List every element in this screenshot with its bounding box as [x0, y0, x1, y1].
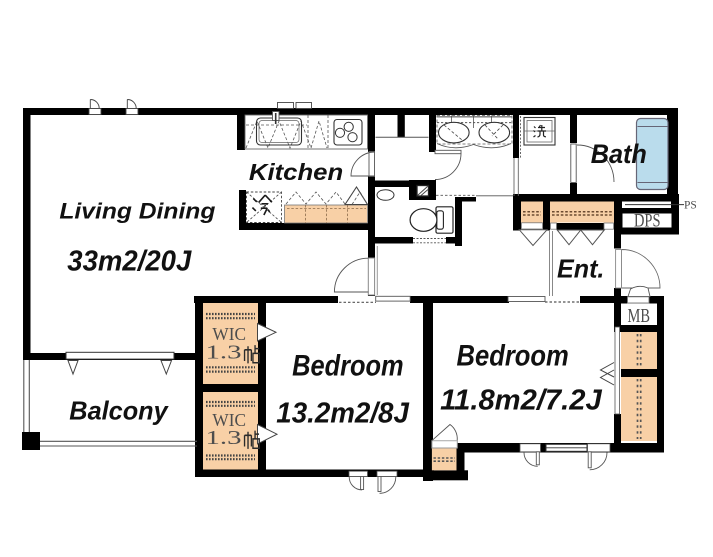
svg-text:WIC: WIC	[212, 410, 246, 430]
svg-text:33m2/20J: 33m2/20J	[67, 246, 192, 278]
svg-text:PS: PS	[684, 199, 697, 211]
svg-text:Bedroom: Bedroom	[457, 340, 569, 372]
svg-text:11.8m2/7.2J: 11.8m2/7.2J	[440, 385, 602, 417]
svg-text:13.2m2/8J: 13.2m2/8J	[276, 398, 410, 430]
svg-text:DPS: DPS	[634, 211, 661, 232]
svg-text:1.3: 1.3	[206, 428, 242, 449]
svg-text:MB: MB	[628, 305, 651, 327]
svg-text:Living Dining: Living Dining	[59, 199, 215, 224]
svg-text:Bedroom: Bedroom	[292, 350, 404, 382]
svg-text:Bath: Bath	[591, 139, 647, 169]
svg-text:WIC: WIC	[212, 324, 246, 344]
svg-text:1.3: 1.3	[206, 343, 242, 364]
svg-text:Balcony: Balcony	[69, 397, 169, 425]
svg-text:Kitchen: Kitchen	[249, 159, 343, 185]
svg-text:Ent.: Ent.	[557, 253, 604, 283]
